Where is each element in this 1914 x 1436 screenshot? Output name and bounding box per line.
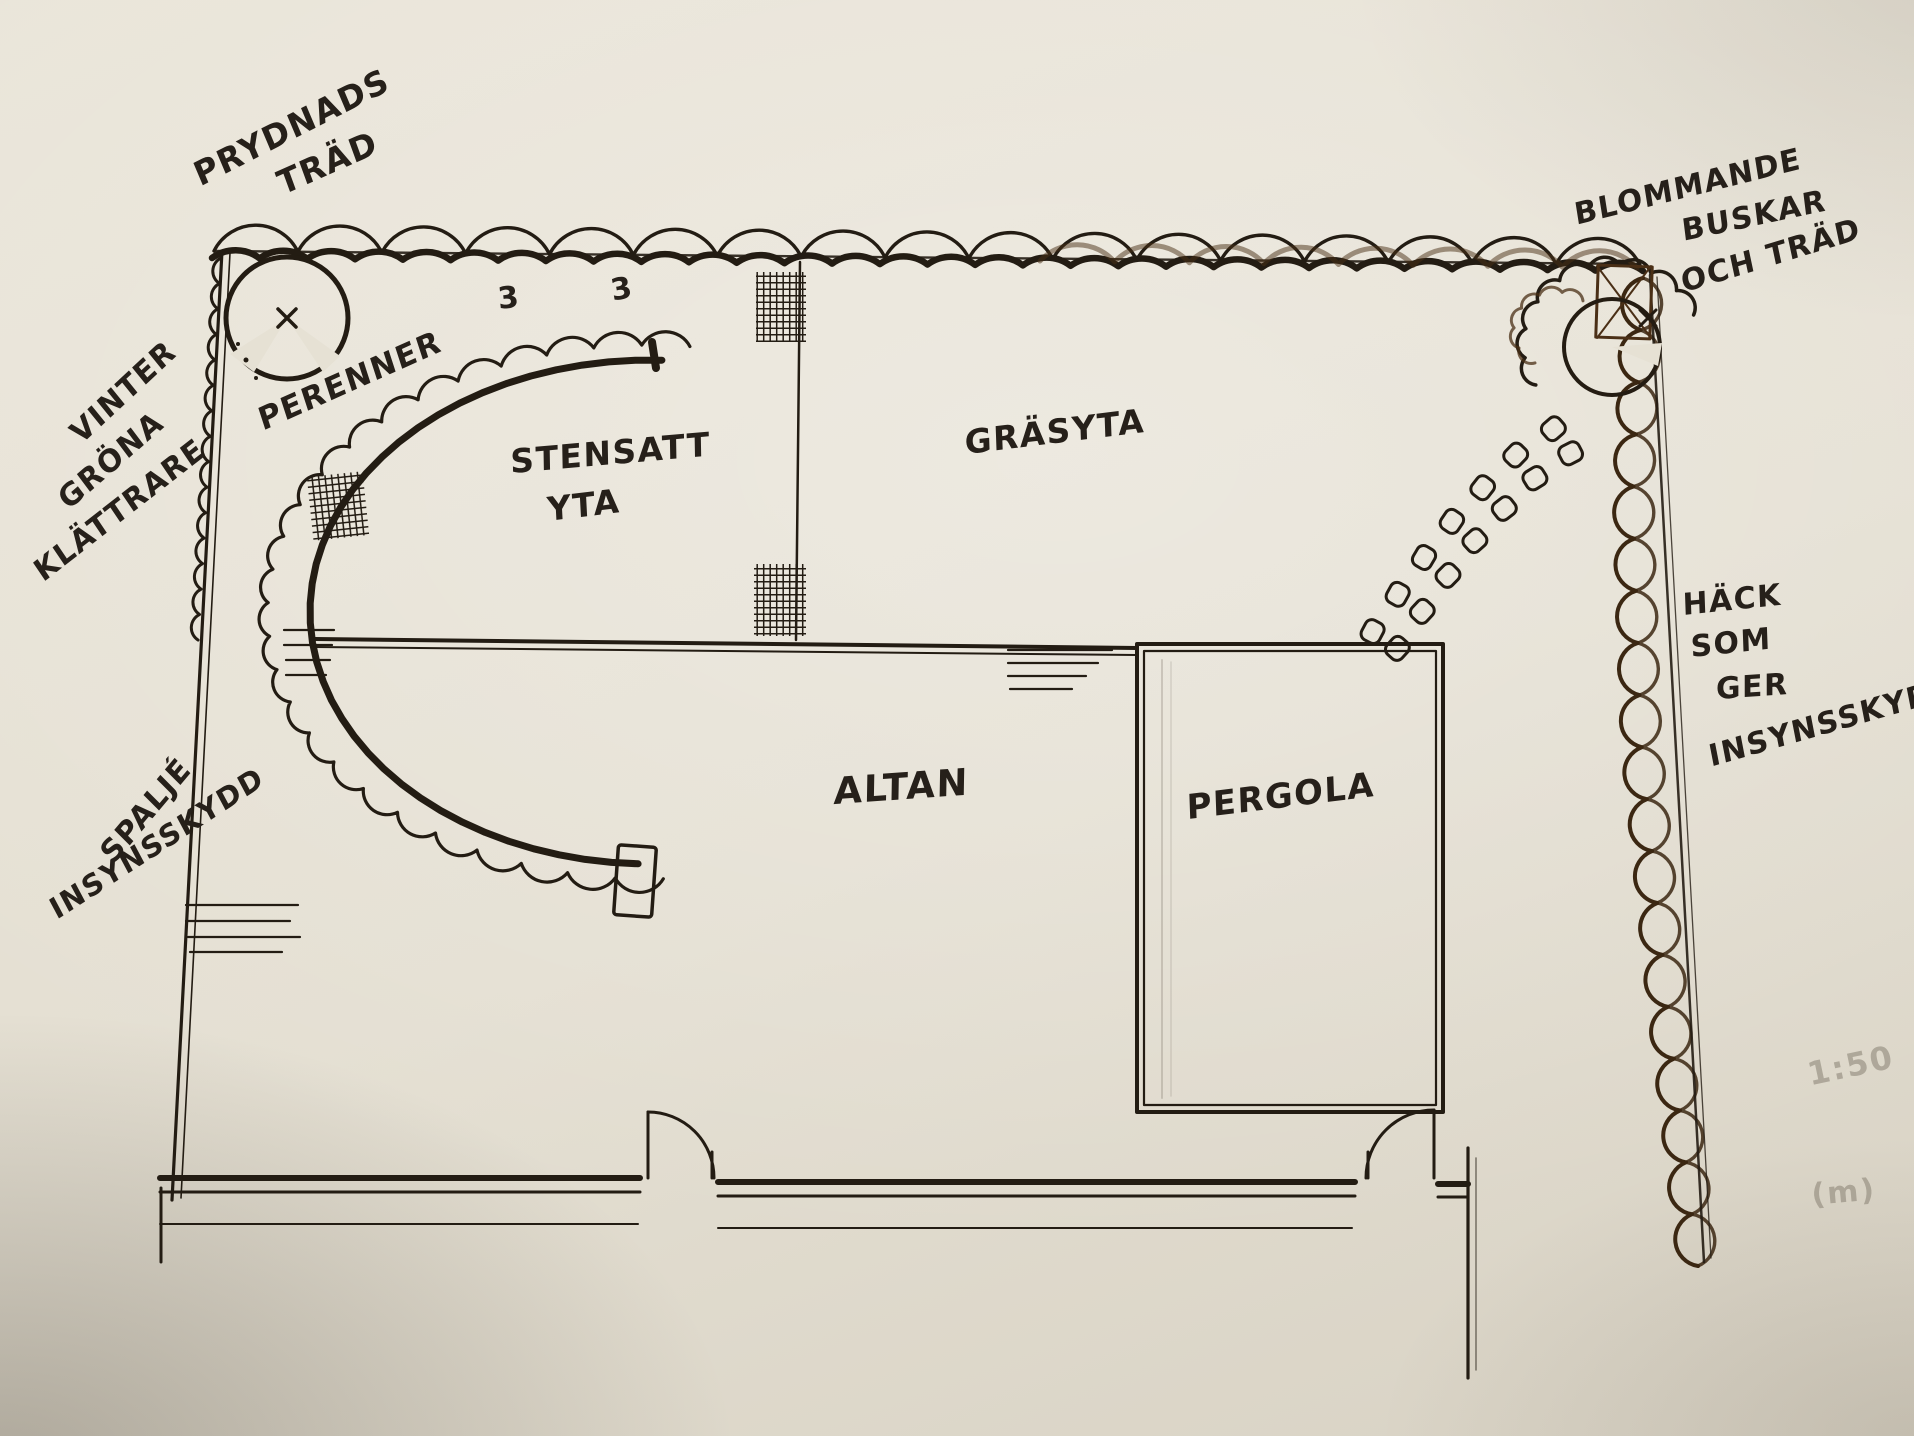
stepping-stones [1359,414,1585,663]
bed-outer-scalloped-edge [259,332,690,893]
ornamental-tree-icon [226,257,348,380]
plant-hatch-clump [756,272,806,342]
wall-line [160,1192,1468,1197]
stepping-stone [1359,617,1387,646]
stepping-stone [1539,414,1569,444]
top-hedge-brown-tint [1040,245,1637,268]
stepping-stone [1383,634,1413,664]
stepping-stone [1433,561,1463,591]
plant-hatch-clump [307,471,369,541]
stepping-stone [1460,526,1490,556]
stepping-stone [1407,597,1437,627]
wall-line-thick [160,1178,1468,1184]
hedge-loops [1634,278,1715,1266]
door-swing-2 [1366,1110,1434,1178]
tree-dot [236,342,240,346]
stepping-stone [1437,507,1466,536]
stepping-stone [1489,494,1519,523]
door-arc [648,1112,714,1178]
stepping-stone [1410,543,1438,572]
corner-planting [1510,257,1695,395]
pergola-outer-rect [1137,644,1443,1112]
plot-boundary [172,251,1640,1200]
stepping-stone [1501,440,1531,470]
garden-plan-sketch: PRYDNADS TRÄD VINTER GRÖNA KLÄTTRARE PER… [0,0,1914,1436]
shade-line-group [186,905,300,952]
stepping-stone [1520,464,1549,493]
house-wall [160,1148,1476,1378]
tree-center-cross [278,309,296,327]
perennial-bed [259,332,690,918]
left-boundary-line [172,251,222,1200]
door-arc [1366,1110,1434,1178]
plant-hatch-clump [754,564,806,636]
bed-end-planter [614,845,657,917]
stepping-stone [1468,473,1497,503]
pergola-inner-rect [1144,651,1436,1105]
deck-edge [315,639,1137,655]
corner-shrub-scallop [1517,257,1695,385]
label-privacy-hedge-line3: GER [1716,667,1789,707]
stepping-stone [1556,439,1585,467]
top-hedge [212,225,1643,271]
shade-line-group [1008,650,1112,689]
plant-count-mark: 3 [496,280,522,317]
paved-lawn-divider [754,262,806,640]
right-privacy-hedge [1614,275,1715,1266]
deck-edge-line [315,639,1137,648]
bed-top-end-cap [652,342,656,368]
stepping-stone [1384,580,1412,609]
pergola-frame [1137,644,1443,1112]
unit-note: (m) [1810,1172,1877,1213]
hedge-loops [1614,278,1698,1266]
wall-line-thin [160,1224,1352,1228]
tree-dot [244,358,249,363]
door-swing-1 [648,1112,714,1178]
tree-dot [254,376,258,380]
